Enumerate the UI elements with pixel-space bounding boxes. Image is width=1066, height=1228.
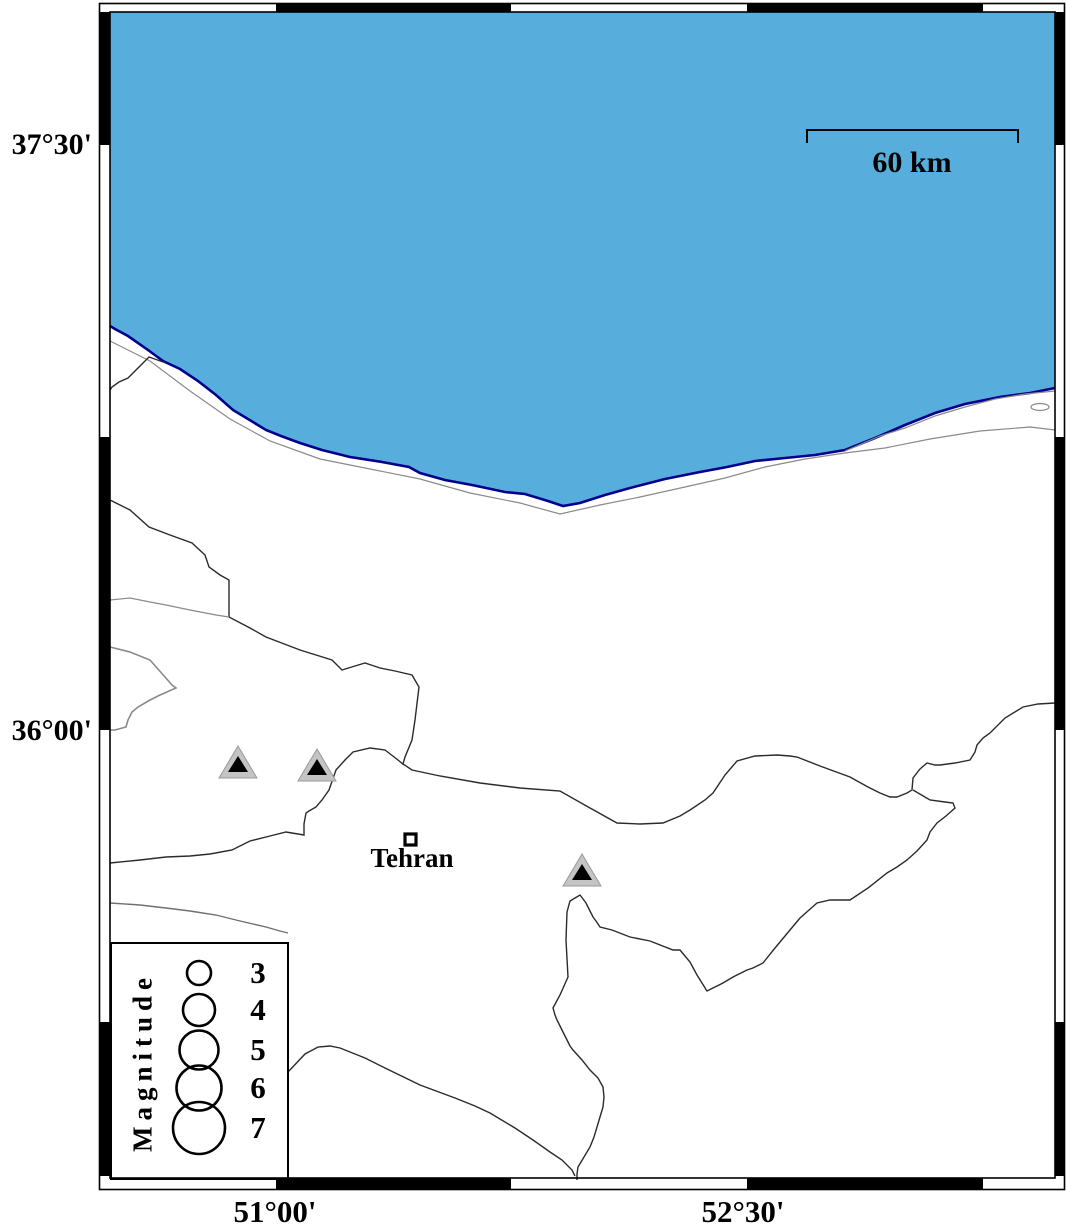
boundary-line-southeast-loop: [553, 790, 955, 1180]
legend-value-4: 4: [250, 992, 266, 1028]
legend-title: Magnitude: [128, 972, 159, 1152]
lat-label-37-30: 37°30': [12, 128, 92, 162]
station-triangle-2: [298, 749, 336, 781]
frame-band: [276, 3, 511, 12]
frame-band: [276, 1178, 511, 1190]
small-lagoon-squiggle: [1031, 404, 1049, 411]
frame-band: [1055, 1022, 1065, 1176]
map-canvas: [0, 0, 1066, 1228]
river-line-southwest: [110, 903, 288, 933]
lon-label-52-30: 52°30': [701, 1194, 784, 1228]
scale-bar-label: 60 km: [872, 146, 951, 180]
frame-band: [747, 3, 983, 12]
frame-band: [99, 1022, 110, 1176]
boundary-line-south: [288, 1046, 575, 1176]
tehran-label: Tehran: [370, 843, 453, 874]
boundary-line-northwest: [110, 357, 166, 390]
station-triangle-3: [563, 854, 601, 886]
caspian-sea-polygon: [110, 12, 1055, 506]
lon-label-51-00: 51°00': [233, 1194, 316, 1228]
frame-band: [747, 1178, 983, 1190]
map-figure: 37°30' 36°00' 51°00' 52°30' 60 km Tehran…: [0, 0, 1066, 1228]
legend-value-3: 3: [250, 955, 266, 991]
wedge-line-west: [110, 647, 176, 730]
frame-band: [1055, 12, 1065, 145]
frame-band: [1055, 437, 1065, 730]
legend-value-5: 5: [250, 1032, 266, 1068]
legend-value-7: 7: [250, 1110, 266, 1146]
station-triangle-1: [219, 746, 257, 778]
boundary-line-west-horizontal: [110, 748, 404, 863]
frame-band: [99, 12, 110, 145]
lat-label-36-00: 36°00': [12, 714, 92, 748]
boundary-line-central-gray: [110, 598, 229, 617]
frame-band: [99, 437, 110, 730]
legend-value-6: 6: [250, 1070, 266, 1106]
